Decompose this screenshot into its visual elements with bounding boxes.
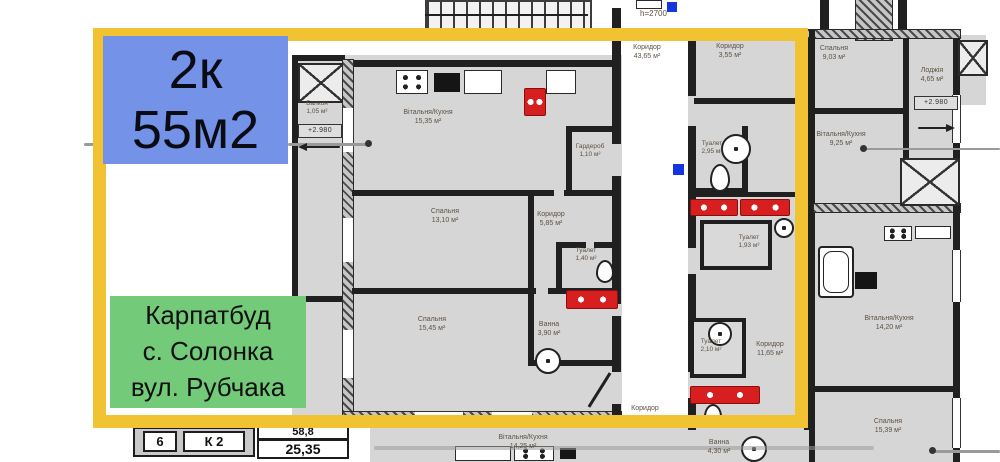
room-label-living-925: Вітальня/Кухня9,25 м²: [816, 130, 865, 148]
room-label-bath-430: Ванна4,30 м²: [708, 438, 731, 456]
legend-living-area: 25,35: [257, 439, 349, 459]
developer-name: Карпатбуд: [110, 298, 306, 334]
wall: [820, 0, 829, 32]
window: [952, 398, 961, 448]
wall: [814, 108, 906, 114]
blue-marker: [667, 2, 677, 12]
level-mark: +2.980: [914, 96, 958, 110]
arrow-line: [918, 127, 948, 129]
size-badge-line1: 2к: [103, 40, 288, 100]
room-label-bedroom-1539: Спальня15,39 м²: [874, 417, 902, 435]
wall: [809, 30, 815, 462]
shaft-x-icon: [900, 158, 960, 206]
dimension-line: [374, 446, 874, 450]
hatch-wall: [814, 30, 960, 38]
developer-badge: Карпатбуд с. Солонка вул. Рубчака: [110, 296, 306, 408]
developer-street: вул. Рубчака: [110, 370, 306, 406]
developer-village: с. Солонка: [110, 334, 306, 370]
legend-apartment-number: 6: [143, 431, 177, 452]
dimension-dot: [929, 447, 936, 454]
wall: [898, 0, 907, 34]
size-badge: 2к 55м2: [103, 36, 288, 164]
window: [952, 250, 961, 302]
counter-icon: [915, 226, 951, 239]
dimension-line: [866, 148, 1000, 150]
wall: [814, 386, 960, 392]
stairs-midline: [425, 14, 588, 16]
legend-apartment-type: К 2: [183, 431, 245, 452]
stove-icon: [884, 226, 912, 241]
room-label-bedroom-903: Спальня9,03 м²: [820, 44, 848, 62]
dimension-line: [934, 450, 1000, 453]
shaft-x-icon: [958, 40, 988, 76]
appliance-icon: [855, 272, 877, 289]
room-label-living-1420: Вітальня/Кухня14,20 м²: [864, 314, 913, 332]
floorplan-listing-image: h=2700: [0, 0, 1000, 462]
room-label-living-1425: Вітальня/Кухня14,25 м²: [498, 433, 547, 451]
elevator-icon: [636, 0, 662, 9]
arrow-right-icon: [946, 124, 955, 132]
ceiling-height-label: h=2700: [640, 9, 667, 18]
room-label-loggia: Лоджія4,65 м²: [921, 66, 944, 84]
size-badge-line2: 55м2: [103, 100, 288, 160]
bathtub-icon: [818, 246, 854, 298]
